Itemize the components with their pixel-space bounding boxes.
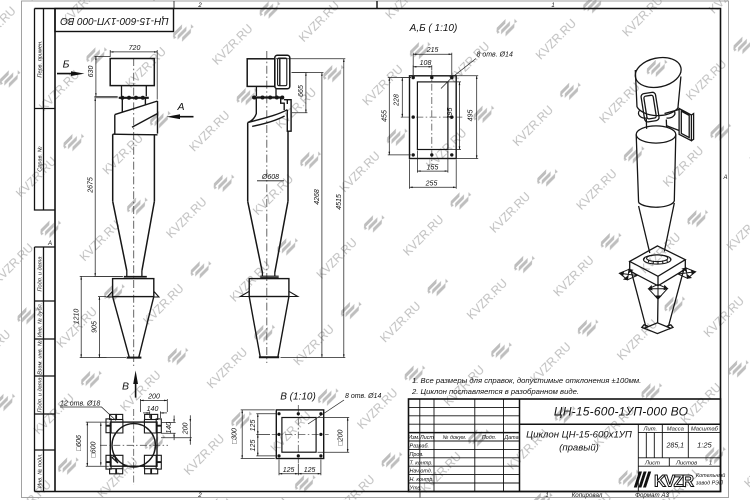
svg-text:Листов: Листов xyxy=(675,461,697,467)
svg-text:Котельный: Котельный xyxy=(696,472,725,479)
svg-text:Т. контр.: Т. контр. xyxy=(410,460,433,466)
svg-text:255: 255 xyxy=(425,181,438,188)
svg-text:Изм.: Изм. xyxy=(408,435,420,441)
svg-text:228: 228 xyxy=(394,94,401,107)
svg-text:Масштаб: Масштаб xyxy=(691,426,719,432)
svg-text:Лит.: Лит. xyxy=(643,426,658,432)
svg-text:№ докум.: № докум. xyxy=(443,435,467,441)
svg-text:630: 630 xyxy=(88,66,95,78)
svg-text:Подп.: Подп. xyxy=(482,435,496,441)
svg-text:4268: 4268 xyxy=(314,189,321,205)
svg-text:125: 125 xyxy=(250,420,257,432)
svg-text:Лист: Лист xyxy=(419,435,434,441)
svg-text:Перв. примен.: Перв. примен. xyxy=(38,40,44,77)
svg-text:395: 395 xyxy=(447,108,454,120)
svg-text:Справ. №: Справ. № xyxy=(38,146,44,171)
svg-text:8 отв. Ø14: 8 отв. Ø14 xyxy=(345,393,381,400)
svg-text:□606: □606 xyxy=(76,435,83,451)
svg-text:140: 140 xyxy=(147,406,159,413)
svg-text:285,1: 285,1 xyxy=(666,443,685,450)
svg-text:KVZR: KVZR xyxy=(654,473,694,491)
svg-text:Циклон ЦН-15-600х1УП: Циклон ЦН-15-600х1УП xyxy=(526,430,632,441)
svg-text:155: 155 xyxy=(427,165,439,172)
svg-text:□600: □600 xyxy=(91,441,98,457)
svg-text:2. Циклон поставляется в разоб: 2. Циклон поставляется в разобранном вид… xyxy=(411,387,579,396)
svg-text:Подп. и дата: Подп. и дата xyxy=(38,377,44,412)
svg-text:А: А xyxy=(176,101,184,113)
svg-text:А: А xyxy=(722,175,727,181)
svg-text:Формат А3: Формат А3 xyxy=(635,492,669,499)
svg-text:Разраб.: Разраб. xyxy=(410,444,430,450)
svg-text:495: 495 xyxy=(468,110,475,122)
svg-text:720: 720 xyxy=(129,45,141,52)
svg-text:Инв. № дубл.: Инв. № дубл. xyxy=(38,303,44,337)
svg-text:Н. контр.: Н. контр. xyxy=(410,477,434,483)
svg-text:Пров.: Пров. xyxy=(410,452,424,458)
svg-text:215: 215 xyxy=(426,47,439,54)
svg-text:Нач.отд.: Нач.отд. xyxy=(410,469,433,475)
svg-text:200: 200 xyxy=(147,394,160,401)
svg-text:Копировал: Копировал xyxy=(572,492,603,499)
svg-text:Утв.: Утв. xyxy=(409,486,422,492)
svg-text:(правый): (правый) xyxy=(559,443,599,454)
svg-text:Взам. инв. №: Взам. инв. № xyxy=(38,340,44,375)
svg-text:В: В xyxy=(122,381,129,393)
svg-text:1210: 1210 xyxy=(74,309,81,325)
svg-text:Масса: Масса xyxy=(667,426,685,432)
svg-text:1: 1 xyxy=(545,492,548,499)
svg-text:1:25: 1:25 xyxy=(697,441,712,450)
svg-text:12 отв. Ø18: 12 отв. Ø18 xyxy=(60,401,100,408)
svg-text:1: 1 xyxy=(709,461,712,467)
svg-text:Ø608: Ø608 xyxy=(261,174,279,181)
svg-text:Подп. и дата: Подп. и дата xyxy=(38,256,44,291)
svg-text:А: А xyxy=(47,241,52,247)
svg-text:2: 2 xyxy=(197,3,202,9)
svg-text:Дата: Дата xyxy=(503,435,518,441)
svg-text:завод РЭП: завод РЭП xyxy=(695,481,723,487)
svg-text:108: 108 xyxy=(420,60,432,67)
svg-text:125: 125 xyxy=(304,467,316,474)
svg-text:ЦН-15-600-1УП-000 ВО: ЦН-15-600-1УП-000 ВО xyxy=(554,405,688,419)
svg-text:А,Б ( 1:10): А,Б ( 1:10) xyxy=(409,23,458,34)
svg-text:1. Все размеры для справок, до: 1. Все размеры для справок, допустимые о… xyxy=(412,376,641,385)
svg-text:455: 455 xyxy=(382,110,389,122)
svg-text:905: 905 xyxy=(92,321,99,333)
svg-text:8 отв. Ø14: 8 отв. Ø14 xyxy=(477,52,513,59)
svg-text:4515: 4515 xyxy=(336,194,343,210)
svg-text:□200: □200 xyxy=(338,429,345,445)
svg-text:140: 140 xyxy=(166,422,173,434)
svg-text:Лист: Лист xyxy=(644,461,660,467)
svg-text:2675: 2675 xyxy=(88,177,95,194)
svg-text:665: 665 xyxy=(298,85,305,97)
svg-text:В (1:10): В (1:10) xyxy=(280,392,316,403)
svg-text:□300: □300 xyxy=(232,428,239,444)
svg-text:125: 125 xyxy=(250,440,257,452)
svg-text:200: 200 xyxy=(182,422,189,435)
svg-text:ЦН-15-600-1УП-000 ВО: ЦН-15-600-1УП-000 ВО xyxy=(60,15,169,26)
svg-text:125: 125 xyxy=(283,467,295,474)
svg-text:1: 1 xyxy=(551,3,554,9)
svg-text:2: 2 xyxy=(197,492,202,499)
svg-text:Инв. № подл.: Инв. № подл. xyxy=(38,453,44,488)
svg-text:Б: Б xyxy=(63,59,70,71)
